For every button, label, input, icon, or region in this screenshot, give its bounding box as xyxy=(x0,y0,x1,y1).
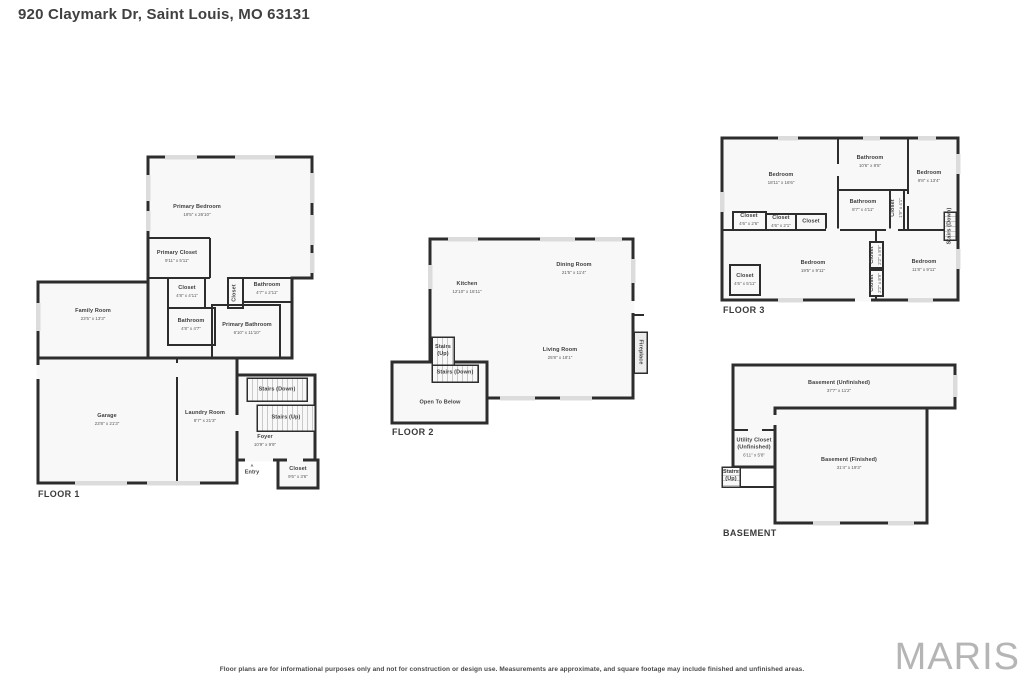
room-name: Basement (Finished) xyxy=(821,457,877,464)
floor1-label-primary-closet: Primary Closet 9'11" x 5'11" xyxy=(157,250,197,264)
room-name: Primary Bedroom xyxy=(173,204,221,211)
room-name: Bedroom xyxy=(768,172,795,179)
floor3-plan: Bedroom 18'11" x 16'6" Bathroom 10'6" x … xyxy=(718,134,963,324)
room-dims: 37'7" x 11'2" xyxy=(808,388,870,394)
disclaimer-text: Floor plans are for informational purpos… xyxy=(0,666,1024,673)
floor3-label-bedroom-right-bottom: Bedroom 11'8" x 9'11" xyxy=(912,259,937,273)
floor1-label-primary-bathroom: Primary Bathroom 6'10" x 11'10" xyxy=(222,322,272,336)
basement-plan: Basement (Unfinished) 37'7" x 11'2" Util… xyxy=(718,363,963,545)
basement-label-utility-closet: Utility Closet (Unfinished) 6'11" x 5'8" xyxy=(736,437,771,458)
room-dims: 4'6" x 2'6" xyxy=(739,221,759,227)
floor1-label-primary-bedroom: Primary Bedroom 19'5" x 26'10" xyxy=(173,204,221,218)
room-dims: 19'5" x 26'10" xyxy=(173,212,221,218)
floor2-label-fireplace: Fireplace xyxy=(636,339,643,364)
room-name: Open To Below xyxy=(420,399,461,406)
room-dims: 4'6" x 2'1" xyxy=(771,223,791,229)
room-dims: 19'5" x 9'11" xyxy=(801,268,826,274)
floor1-label-entry: ▲ Entry xyxy=(245,463,260,476)
room-name: Primary Bathroom xyxy=(222,322,272,329)
page-title: 920 Claymark Dr, Saint Louis, MO 63131 xyxy=(18,6,310,23)
room-dims: 2'2" x 8'9" xyxy=(877,273,883,293)
room-name: Bathroom xyxy=(857,155,884,162)
floor1-label-laundry-room: Laundry Room 8'7" x 21'3" xyxy=(185,410,225,424)
room-dims: 25'8" x 18'1" xyxy=(543,355,577,361)
floor2-label-dining-room: Dining Room 21'5" x 11'4" xyxy=(556,262,591,276)
room-name: Closet xyxy=(231,284,238,301)
basement-label-finished: Basement (Finished) 31'4" x 19'3" xyxy=(821,457,877,471)
room-name: Stairs (Down) xyxy=(437,369,474,376)
room-name: Closet xyxy=(802,218,819,225)
basement-title: BASEMENT xyxy=(723,528,777,538)
floor3-label-bedroom-left: Bedroom 18'11" x 16'6" xyxy=(768,172,795,186)
room-name: Bathroom xyxy=(254,282,281,289)
floor3-label-stairs-down: Stairs (Down) xyxy=(946,208,953,245)
room-dims: 8'7" x 21'3" xyxy=(185,418,225,424)
floor3-label-bathroom-mid: Bathroom 8'7" x 4'11" xyxy=(850,199,877,213)
room-name-2: (Up) xyxy=(435,351,451,358)
room-name: Garage xyxy=(95,413,120,420)
floor1-label-closet-c: Closet 9'6" x 3'6" xyxy=(288,466,308,480)
room-dims: 4'8" x 4'7" xyxy=(178,326,205,332)
room-name: Laundry Room xyxy=(185,410,225,417)
entry-arrow-icon: ▲ xyxy=(245,463,260,468)
floor1-label-closet-b: Closet xyxy=(231,284,238,301)
room-dims: 18'11" x 16'6" xyxy=(768,180,795,186)
floor2-label-stairs-down: Stairs (Down) xyxy=(437,369,474,376)
room-name: Bathroom xyxy=(850,199,877,206)
room-name: Utility Closet xyxy=(736,437,771,444)
room-name: Bedroom xyxy=(801,260,826,267)
room-dims: 23'5" x 13'3" xyxy=(75,316,111,322)
room-name: Dining Room xyxy=(556,262,591,269)
floor1-label-bathroom-b: Bathroom 4'7" x 2'11" xyxy=(254,282,281,296)
floor3-label-bedroom-mid: Bedroom 19'5" x 9'11" xyxy=(801,260,826,274)
floor2-title: FLOOR 2 xyxy=(392,427,434,437)
basement-label-unfinished: Basement (Unfinished) 37'7" x 11'2" xyxy=(808,380,870,394)
floor3-label-closet-left: Closet 4'6" x 5'11" xyxy=(734,273,756,287)
room-name: Stairs (Up) xyxy=(272,414,301,421)
room-name: Primary Closet xyxy=(157,250,197,257)
room-dims: 2'2" x 8'9" xyxy=(877,245,883,265)
floor3-label-bedroom-right-top: Bedroom 9'8" x 13'4" xyxy=(917,170,942,184)
room-name: Family Room xyxy=(75,308,111,315)
room-dims: 6'11" x 5'8" xyxy=(736,453,771,459)
floor3-label-closet-v1: Closet 1'9" x 4'1" xyxy=(890,198,904,218)
floor3-label-closet-2: Closet 4'6" x 2'1" xyxy=(771,215,791,229)
floor3-title: FLOOR 3 xyxy=(723,305,765,315)
room-name: Stairs (Down) xyxy=(259,386,296,393)
floor2-label-stairs-up: Stairs (Up) xyxy=(435,344,451,358)
floor2-label-open-to-below: Open To Below xyxy=(420,399,461,406)
room-name: Kitchen xyxy=(452,281,481,288)
room-dims: 21'5" x 11'4" xyxy=(556,270,591,276)
room-dims: 4'8" x 4'11" xyxy=(176,293,198,299)
room-dims: 12'10" x 16'11" xyxy=(452,289,481,295)
floor3-label-closet-v3: Closet 2'2" x 8'9" xyxy=(869,273,883,293)
room-name: Fireplace xyxy=(636,339,643,364)
room-name: Bedroom xyxy=(912,259,937,266)
room-name: Closet xyxy=(869,245,876,265)
room-dims: 4'7" x 2'11" xyxy=(254,290,281,296)
floor1-label-stairs-down: Stairs (Down) xyxy=(259,386,296,393)
floor1-label-bathroom-a: Bathroom 4'8" x 4'7" xyxy=(178,318,205,332)
floor3-label-closet-3: Closet xyxy=(802,218,819,225)
room-dims: 1'9" x 4'1" xyxy=(898,198,904,218)
floor3-label-closet-1: Closet 4'6" x 2'6" xyxy=(739,213,759,227)
maris-watermark-logo: MARIS xyxy=(895,636,1020,679)
room-name: Closet xyxy=(734,273,756,280)
floor1-label-stairs-up: Stairs (Up) xyxy=(272,414,301,421)
room-name: Bedroom xyxy=(917,170,942,177)
room-name: Closet xyxy=(176,285,198,292)
room-dims: 10'6" x 8'5" xyxy=(857,163,884,169)
floor1-plan: Primary Bedroom 19'5" x 26'10" Primary C… xyxy=(35,153,320,503)
room-name: Closet xyxy=(288,466,308,473)
room-name-2: (Up) xyxy=(723,476,739,483)
floor2-walls-svg xyxy=(390,237,652,442)
floor1-label-family-room: Family Room 23'5" x 13'3" xyxy=(75,308,111,322)
floor3-label-bathroom-top: Bathroom 10'6" x 8'5" xyxy=(857,155,884,169)
floor2-label-kitchen: Kitchen 12'10" x 16'11" xyxy=(452,281,481,295)
room-dims: 11'8" x 9'11" xyxy=(912,267,937,273)
room-dims: 9'6" x 3'6" xyxy=(288,474,308,480)
room-name: Living Room xyxy=(543,347,577,354)
floor3-label-closet-v2: Closet 2'2" x 8'9" xyxy=(869,245,883,265)
room-dims: 31'4" x 19'3" xyxy=(821,465,877,471)
room-dims: 4'6" x 5'11" xyxy=(734,281,756,287)
room-dims: 8'7" x 4'11" xyxy=(850,207,877,213)
room-dims: 10'9" x 9'9" xyxy=(254,442,276,448)
floor1-title: FLOOR 1 xyxy=(38,489,80,499)
room-name: Entry xyxy=(245,469,260,476)
floor1-label-closet-a: Closet 4'8" x 4'11" xyxy=(176,285,198,299)
room-name: Basement (Unfinished) xyxy=(808,380,870,387)
room-name: Foyer xyxy=(254,434,276,441)
floor1-label-garage: Garage 23'8" x 21'3" xyxy=(95,413,120,427)
room-dims: 9'11" x 5'11" xyxy=(157,258,197,264)
floor2-label-living-room: Living Room 25'8" x 18'1" xyxy=(543,347,577,361)
floor1-label-foyer: Foyer 10'9" x 9'9" xyxy=(254,434,276,448)
room-name: Stairs xyxy=(435,344,451,351)
room-name: Closet xyxy=(890,198,897,218)
room-dims: 9'8" x 13'4" xyxy=(917,178,942,184)
room-name: Closet xyxy=(869,273,876,293)
room-name: Stairs (Down) xyxy=(946,208,953,245)
floor3-walls-svg xyxy=(718,134,963,324)
floor2-plan: Kitchen 12'10" x 16'11" Dining Room 21'5… xyxy=(390,237,652,442)
room-dims: 6'10" x 11'10" xyxy=(222,330,272,336)
room-name: Closet xyxy=(739,213,759,220)
room-name: Closet xyxy=(771,215,791,222)
room-name: Bathroom xyxy=(178,318,205,325)
room-name-2: (Unfinished) xyxy=(736,445,771,452)
basement-label-stairs-up: Stairs (Up) xyxy=(723,469,739,483)
room-dims: 23'8" x 21'3" xyxy=(95,421,120,427)
room-name: Stairs xyxy=(723,469,739,476)
